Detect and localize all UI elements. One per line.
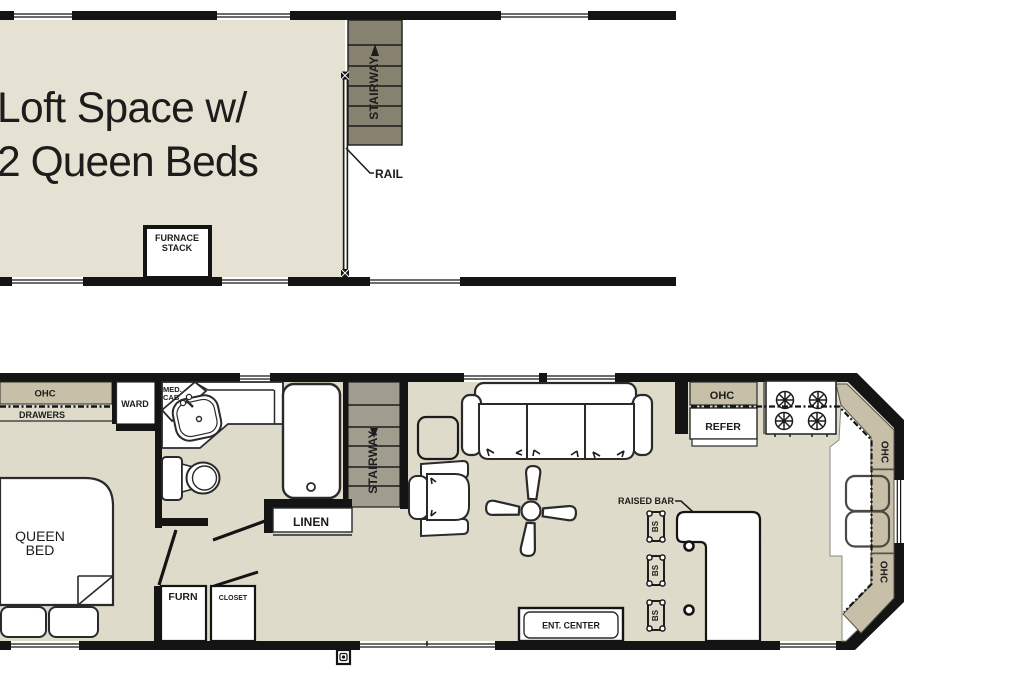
- svg-text:FURN: FURN: [168, 591, 197, 603]
- svg-text:OHC: OHC: [34, 389, 55, 400]
- svg-text:STAIRWAY: STAIRWAY: [366, 430, 380, 494]
- svg-text:LINEN: LINEN: [293, 515, 329, 529]
- svg-text:CAB: CAB: [163, 393, 180, 402]
- svg-text:BED: BED: [26, 542, 55, 558]
- svg-text:BS: BS: [651, 609, 660, 621]
- svg-text:OHC: OHC: [877, 561, 888, 583]
- svg-text:OHC: OHC: [878, 441, 889, 463]
- svg-text:BS: BS: [651, 564, 660, 576]
- svg-text:DRAWERS: DRAWERS: [19, 410, 65, 420]
- svg-text:BS: BS: [651, 520, 660, 532]
- svg-text:RAISED BAR: RAISED BAR: [618, 496, 675, 506]
- svg-text:2 Queen Beds: 2 Queen Beds: [0, 139, 258, 186]
- svg-text:WARD: WARD: [121, 399, 149, 409]
- svg-text:Loft Space w/: Loft Space w/: [0, 85, 248, 132]
- svg-text:STACK: STACK: [162, 243, 193, 253]
- svg-text:FURNACE: FURNACE: [155, 233, 199, 243]
- svg-text:CLOSET: CLOSET: [219, 595, 248, 602]
- svg-text:RAIL: RAIL: [375, 167, 403, 181]
- svg-text:ENT. CENTER: ENT. CENTER: [542, 621, 600, 631]
- svg-text:OHC: OHC: [710, 390, 735, 402]
- svg-text:REFER: REFER: [705, 421, 741, 433]
- svg-text:STAIRWAY: STAIRWAY: [367, 56, 381, 120]
